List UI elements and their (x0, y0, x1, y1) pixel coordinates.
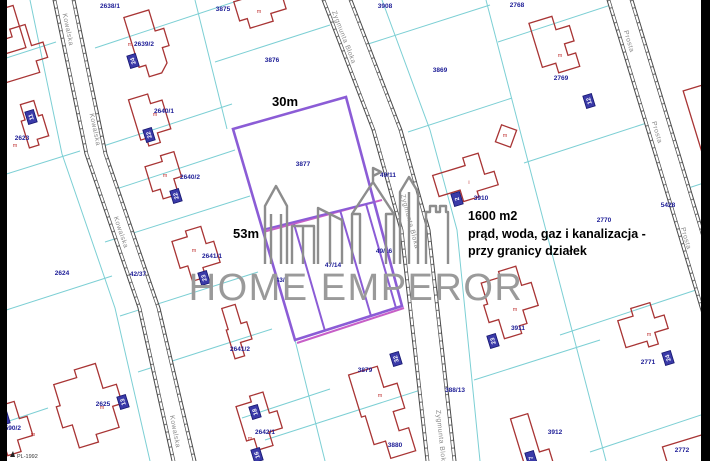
coordinate-system-label: PL-1992 (17, 454, 38, 460)
parcel-number-label: 2625 (96, 401, 111, 408)
parcel-number-label: 3876 (265, 57, 280, 64)
parcel-number-label: 2771 (641, 359, 656, 366)
height-dimension-label: 53m (233, 226, 259, 241)
parcel-number-label: 3910 (474, 195, 489, 202)
parcel-number-label: 3908 (378, 3, 393, 10)
parcel-number-label: 2640/1 (154, 108, 174, 115)
right-letterbox-bar (701, 0, 710, 461)
parcel-number-label: 2641/1 (202, 253, 222, 260)
parcel-number-label: 5428 (661, 202, 676, 209)
parcel-number-label: 2638/1 (100, 3, 120, 10)
parcel-number-label: 2641/2 (230, 346, 250, 353)
building-letter: m (163, 173, 168, 179)
cadastral-map-screenshot: mmmmmmmmmmmmmim 2638/13875390827682639/2… (0, 0, 710, 461)
building-letter: m (192, 248, 197, 254)
parcel-number-label: 388/13 (445, 387, 465, 394)
parcel-number-label: 2642/1 (255, 429, 275, 436)
parcel-number-label: 49/16 (376, 248, 393, 255)
parcel-number-label: 2770 (597, 217, 612, 224)
parcel-number-label: 42/37 (130, 271, 147, 278)
parcel-number-label: 2768 (510, 2, 525, 9)
plot-utilities-text-2: przy granicy działek (468, 244, 587, 258)
parcel-number-label: 3877 (296, 161, 311, 168)
building-letter: m (257, 9, 262, 15)
parcel-number-label: 3911 (511, 325, 525, 332)
building-letter: m (378, 393, 383, 399)
parcel-number-label: 2640/2 (180, 174, 200, 181)
building-letter: m (31, 432, 36, 438)
width-dimension-label: 30m (272, 94, 298, 109)
parcel-number-label: 2639/2 (134, 41, 154, 48)
building-letter: m (647, 332, 652, 338)
building-letter: m (503, 133, 508, 139)
building-letter: m (128, 42, 133, 48)
building-letter: i (468, 180, 469, 186)
plot-utilities-text: prąd, woda, gaz i kanalizacja - (468, 227, 646, 241)
building-letter: m (248, 436, 253, 442)
parcel-number-label: 2772 (675, 447, 690, 454)
parcel-number-label: 2769 (554, 75, 569, 82)
building-letter: m (558, 53, 563, 59)
parcel-number-label: 3869 (433, 67, 448, 74)
parcel-number-label: 3879 (358, 367, 373, 374)
plot-area-text: 1600 m2 (468, 209, 517, 223)
parcel-number-label: 49/11 (380, 172, 396, 179)
parcel-number-label: 3880 (388, 442, 403, 449)
parcel-number-label: 3875 (216, 6, 231, 13)
building-letter: m (13, 143, 18, 149)
cadastral-map: mmmmmmmmmmmmmim 2638/13875390827682639/2… (0, 0, 710, 461)
parcel-number-label: 2624 (55, 270, 70, 277)
parcel-number-label: 3912 (548, 429, 563, 436)
watermark-text: HOME EMPEROR (189, 267, 524, 309)
parcel-number-label: 2623 (15, 135, 30, 142)
left-letterbox-bar (0, 0, 7, 461)
